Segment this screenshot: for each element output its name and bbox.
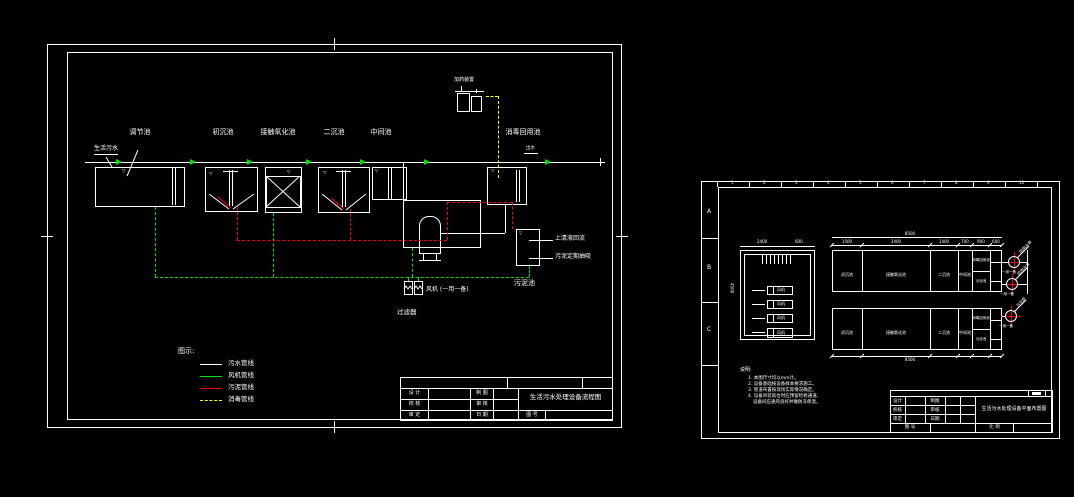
blower-unit-divider	[773, 300, 774, 309]
ruler-tick	[877, 181, 878, 187]
center-pipe	[229, 170, 230, 206]
pump-stub	[1002, 316, 1005, 317]
titleblock-cell: 设 计	[401, 391, 428, 397]
unit-leader	[752, 332, 765, 333]
air-line	[155, 207, 156, 277]
outlet-tick	[600, 158, 601, 166]
dim-text: 600	[990, 240, 1002, 245]
sludge-tank	[516, 229, 540, 266]
notes-title: 说明:	[740, 368, 752, 374]
tank-label-secondary-sed: 二沉池	[311, 128, 357, 136]
compartment-label: 初沉池	[832, 273, 862, 278]
callout-sludge-out: 污泥定期抽吸	[555, 254, 591, 261]
pipe-to-filter	[403, 162, 404, 200]
ruler-tick	[941, 181, 942, 187]
ruler-tick	[781, 181, 782, 187]
dim-text: 8500	[900, 232, 920, 237]
titleblock-cell: 日期	[925, 417, 945, 422]
dosing-barrel	[457, 93, 470, 112]
ruler-tick	[973, 181, 974, 187]
sludge-tank-label: 污泥池	[514, 279, 535, 287]
tank-label-regulating: 调节池	[116, 128, 164, 136]
outlet-underline	[524, 153, 538, 154]
notes-line: 3. 管道布置按现场实际情况确定。	[748, 388, 817, 393]
ruler-number: 9	[987, 181, 990, 186]
blower-unit-divider	[773, 328, 774, 338]
compartment-label: 消毒回用池	[972, 316, 990, 320]
tank-label-contact-oxidation: 接触氧化池	[251, 128, 305, 136]
pump-symbol	[1006, 278, 1018, 290]
titleblock-line	[545, 410, 546, 421]
titleblock-line	[890, 414, 975, 415]
compartment-label: 中间池	[958, 273, 972, 278]
sludge-line	[237, 207, 238, 240]
blower-room-inner-wall	[744, 254, 811, 336]
air-line	[529, 266, 530, 277]
dim-text: 700	[959, 240, 971, 245]
callout-leader	[529, 240, 553, 241]
center-pipe	[345, 170, 346, 207]
titleblock-line	[400, 388, 613, 389]
notes-line: 设备间应通风良好并做防冻保温。	[753, 400, 821, 405]
level-mark: ▽	[287, 170, 290, 175]
titleblock-line	[428, 388, 429, 421]
ruler-number: 10	[1019, 181, 1024, 186]
unit-leader	[752, 290, 765, 291]
sludge-line	[447, 202, 512, 203]
titleblock-line	[493, 388, 494, 421]
unit-leader	[752, 318, 765, 319]
ruler-number: 4	[827, 181, 830, 186]
suction-pipe	[388, 168, 389, 199]
ruler-tick	[909, 181, 910, 187]
disinfectant-line	[498, 96, 499, 178]
pump-note: 一用一备	[1002, 270, 1016, 274]
drawing-title: 生活污水处理设备平面布置图	[976, 407, 1052, 413]
drawing-no-label: 图 号	[890, 425, 930, 430]
titleblock-cell: 日 期	[471, 413, 493, 419]
blower-unit-divider	[773, 314, 774, 323]
pump-note: 一用一备	[1000, 292, 1014, 296]
compartment-label: 初沉池	[832, 331, 862, 336]
titleblock-line	[890, 423, 1053, 424]
dosing-mixer	[461, 86, 462, 91]
dosing-label: 加药装置	[454, 78, 474, 84]
train-divider	[990, 281, 1002, 282]
zone-label: A	[703, 209, 715, 216]
center-pipe	[232, 170, 233, 206]
zone-label: B	[703, 265, 715, 272]
dim-text: 900	[975, 240, 987, 245]
ruler-number: 3	[795, 181, 798, 186]
pump-stub	[1002, 262, 1008, 263]
center-pipe-top	[223, 171, 238, 172]
titleblock-cell: 设计	[890, 399, 905, 404]
titleblock-cell: 审核	[925, 408, 945, 413]
ruler-number: 8	[955, 181, 958, 186]
train-divider	[972, 271, 990, 272]
legend-sample-sludge	[200, 388, 222, 389]
dim-text: 2400	[757, 240, 767, 245]
level-mark: ▽	[375, 169, 378, 174]
titleblock-line	[1013, 423, 1014, 433]
tank-baffle	[172, 168, 173, 205]
tank-label-intermediate: 中间池	[359, 128, 403, 136]
level-mark: ▽	[209, 172, 212, 177]
vessel-base	[419, 260, 441, 261]
legend-sample-wastewater	[200, 364, 222, 365]
tank-label-disinfection: 消毒回用池	[499, 128, 547, 136]
ruler-tick	[749, 181, 750, 187]
titleblock-line	[930, 423, 931, 433]
legend-label: 污水管线	[228, 360, 254, 367]
centering-mark	[41, 236, 53, 237]
ruler-tick	[845, 181, 846, 187]
pump-stub	[1018, 284, 1027, 285]
train-divider	[958, 250, 959, 292]
legend-label: 消毒管线	[228, 396, 254, 403]
titleblock-line	[400, 410, 613, 411]
dosing-barrel	[471, 96, 482, 112]
train-divider	[990, 262, 1002, 263]
outlet-weir	[519, 170, 520, 202]
train-divider	[930, 250, 931, 292]
ruler-number: 7	[923, 181, 926, 186]
titleblock-line	[960, 396, 961, 423]
notes-line: 2. 设备基础按设备样本要求施工。	[748, 382, 817, 387]
centering-mark	[334, 421, 335, 433]
center-pipe-top	[336, 171, 351, 172]
titleblock-cell: 审定	[890, 417, 905, 422]
pump-header-pipe	[1027, 250, 1028, 294]
titleblock-line	[905, 396, 906, 423]
ruler-number: 5	[859, 181, 862, 186]
suction-pipe	[391, 168, 392, 199]
blower	[414, 281, 423, 295]
blower-unit-label: 风机	[777, 331, 785, 336]
inlet-underline	[94, 154, 118, 155]
compartment-label: 二沉池	[930, 331, 958, 336]
air-line	[412, 248, 413, 277]
zone-divider	[701, 365, 718, 366]
titleblock-cell: 制图	[925, 399, 945, 404]
dim-line	[740, 246, 815, 247]
titleblock-cell: 校 核	[401, 402, 428, 408]
train-divider	[990, 320, 1002, 321]
train-divider	[990, 308, 991, 350]
compartment-label: 消毒回用池	[972, 258, 990, 262]
cad-canvas[interactable]: 生活污水 调节池 初沉池 接触氧化池 二沉池 中间池 消毒回用池 出水 ▽ ▽ …	[0, 0, 1074, 497]
dim-line	[832, 245, 1002, 246]
pump-note: 一用一备	[999, 324, 1013, 328]
filter-label: 过滤器	[397, 309, 417, 316]
outlet-label: 出水	[526, 146, 535, 151]
titleblock-cell: 审 核	[471, 402, 493, 408]
center-pipe	[342, 170, 343, 207]
notes-line: 4. 设备吊装就位时应预留检修通道,	[748, 394, 818, 399]
centering-mark	[616, 236, 628, 237]
folder-mark	[1032, 392, 1041, 395]
legend-sample-air	[200, 376, 222, 377]
train-divider	[862, 308, 863, 350]
scale-label: 比 例	[976, 425, 1013, 430]
compartment-label: 污泥池	[972, 337, 990, 341]
ruler-tick	[813, 181, 814, 187]
dim-line	[832, 356, 1002, 357]
sludge-line-main	[237, 240, 447, 241]
titleblock-line	[400, 399, 518, 400]
dim-text: 1400	[936, 240, 952, 245]
zone-divider	[701, 302, 718, 303]
titleblock-line	[945, 396, 946, 423]
train-divider	[990, 339, 1002, 340]
train-divider	[958, 308, 959, 350]
dim-text: 8500	[900, 358, 920, 363]
callout-supernatant: 上清液回流	[555, 236, 585, 243]
pump-symbol	[1008, 256, 1020, 268]
main-water-line	[85, 162, 605, 163]
dim-text: 3400	[888, 240, 904, 245]
blower	[404, 281, 413, 295]
legend-label: 污泥管线	[228, 384, 254, 391]
train-divider	[990, 250, 991, 292]
ruler-number: 6	[891, 181, 894, 186]
legend-sample-disinfect	[200, 400, 222, 401]
compartment-label: 接触氧化池	[862, 331, 930, 336]
titleblock-cell: 制 图	[471, 391, 493, 397]
vessel-leg	[423, 253, 424, 260]
level-mark: ▽	[323, 171, 326, 176]
blower-label: 风机 (一用一备)	[426, 287, 469, 294]
tank-label-primary-sed: 初沉池	[199, 128, 247, 136]
zone-label: C	[703, 327, 715, 334]
legend-title: 图示:	[178, 347, 194, 355]
inlet-label: 生活污水	[94, 146, 118, 153]
centering-mark	[334, 38, 335, 50]
blower-unit-label: 风机	[777, 316, 785, 321]
ruler-tick	[1037, 181, 1038, 187]
compartment-label: 二沉池	[930, 273, 958, 278]
dim-line	[832, 237, 1002, 238]
titleblock-cell: 校核	[890, 408, 905, 413]
compartment-label: 接触氧化池	[862, 273, 930, 278]
filter-vessel	[419, 216, 441, 254]
dosing-mixer	[476, 89, 477, 93]
air-line-main	[155, 277, 529, 278]
dim-text: 4500	[729, 283, 734, 293]
ruler-tick	[717, 181, 718, 187]
level-mark: ▽	[122, 169, 125, 174]
train-divider	[972, 329, 990, 330]
compartment-label: 污泥池	[972, 279, 990, 283]
sludge-line	[512, 202, 513, 229]
blower-unit-label: 风机	[777, 288, 785, 293]
pipe-to-disinfection	[505, 204, 506, 233]
level-mark: ▽	[491, 169, 494, 174]
train-divider	[862, 250, 863, 292]
dim-text: 600	[795, 240, 803, 245]
legend-label: 风机管线	[228, 372, 254, 379]
ruler-number: 2	[763, 181, 766, 186]
tank-baffle	[175, 168, 176, 205]
vessel-leg	[436, 253, 437, 260]
media-block	[266, 176, 301, 208]
ruler-number: 1	[731, 181, 734, 186]
dim-text: 1500	[839, 240, 855, 245]
zone-divider	[701, 238, 718, 239]
callout-leader	[529, 258, 553, 259]
unit-leader	[752, 304, 765, 305]
train-divider	[930, 308, 931, 350]
room-hatch	[762, 255, 792, 264]
blower-unit-label: 风机	[777, 302, 785, 307]
dosing-frame	[455, 91, 484, 92]
blower-unit-divider	[773, 286, 774, 295]
pump-stub	[1002, 284, 1006, 285]
pump-symbol	[1005, 310, 1017, 322]
air-line	[273, 213, 274, 277]
titleblock-line	[582, 377, 583, 388]
sludge-line	[447, 202, 448, 240]
disinfectant-line	[486, 96, 498, 97]
pipe-filter-out	[441, 233, 505, 234]
drawing-no-label: 图 号	[519, 413, 545, 419]
titleblock-line	[890, 405, 975, 406]
notes-line: 1. 本图尺寸均以mm计。	[748, 376, 799, 381]
ruler-tick	[1005, 181, 1006, 187]
titleblock-cell: 审 定	[401, 413, 428, 419]
titleblock-line	[507, 377, 508, 388]
compartment-label: 中间池	[958, 331, 972, 336]
drawing-title: 生活污水处理设备流程图	[519, 394, 612, 401]
sludge-line	[350, 209, 351, 240]
outlet-weir	[516, 170, 517, 202]
